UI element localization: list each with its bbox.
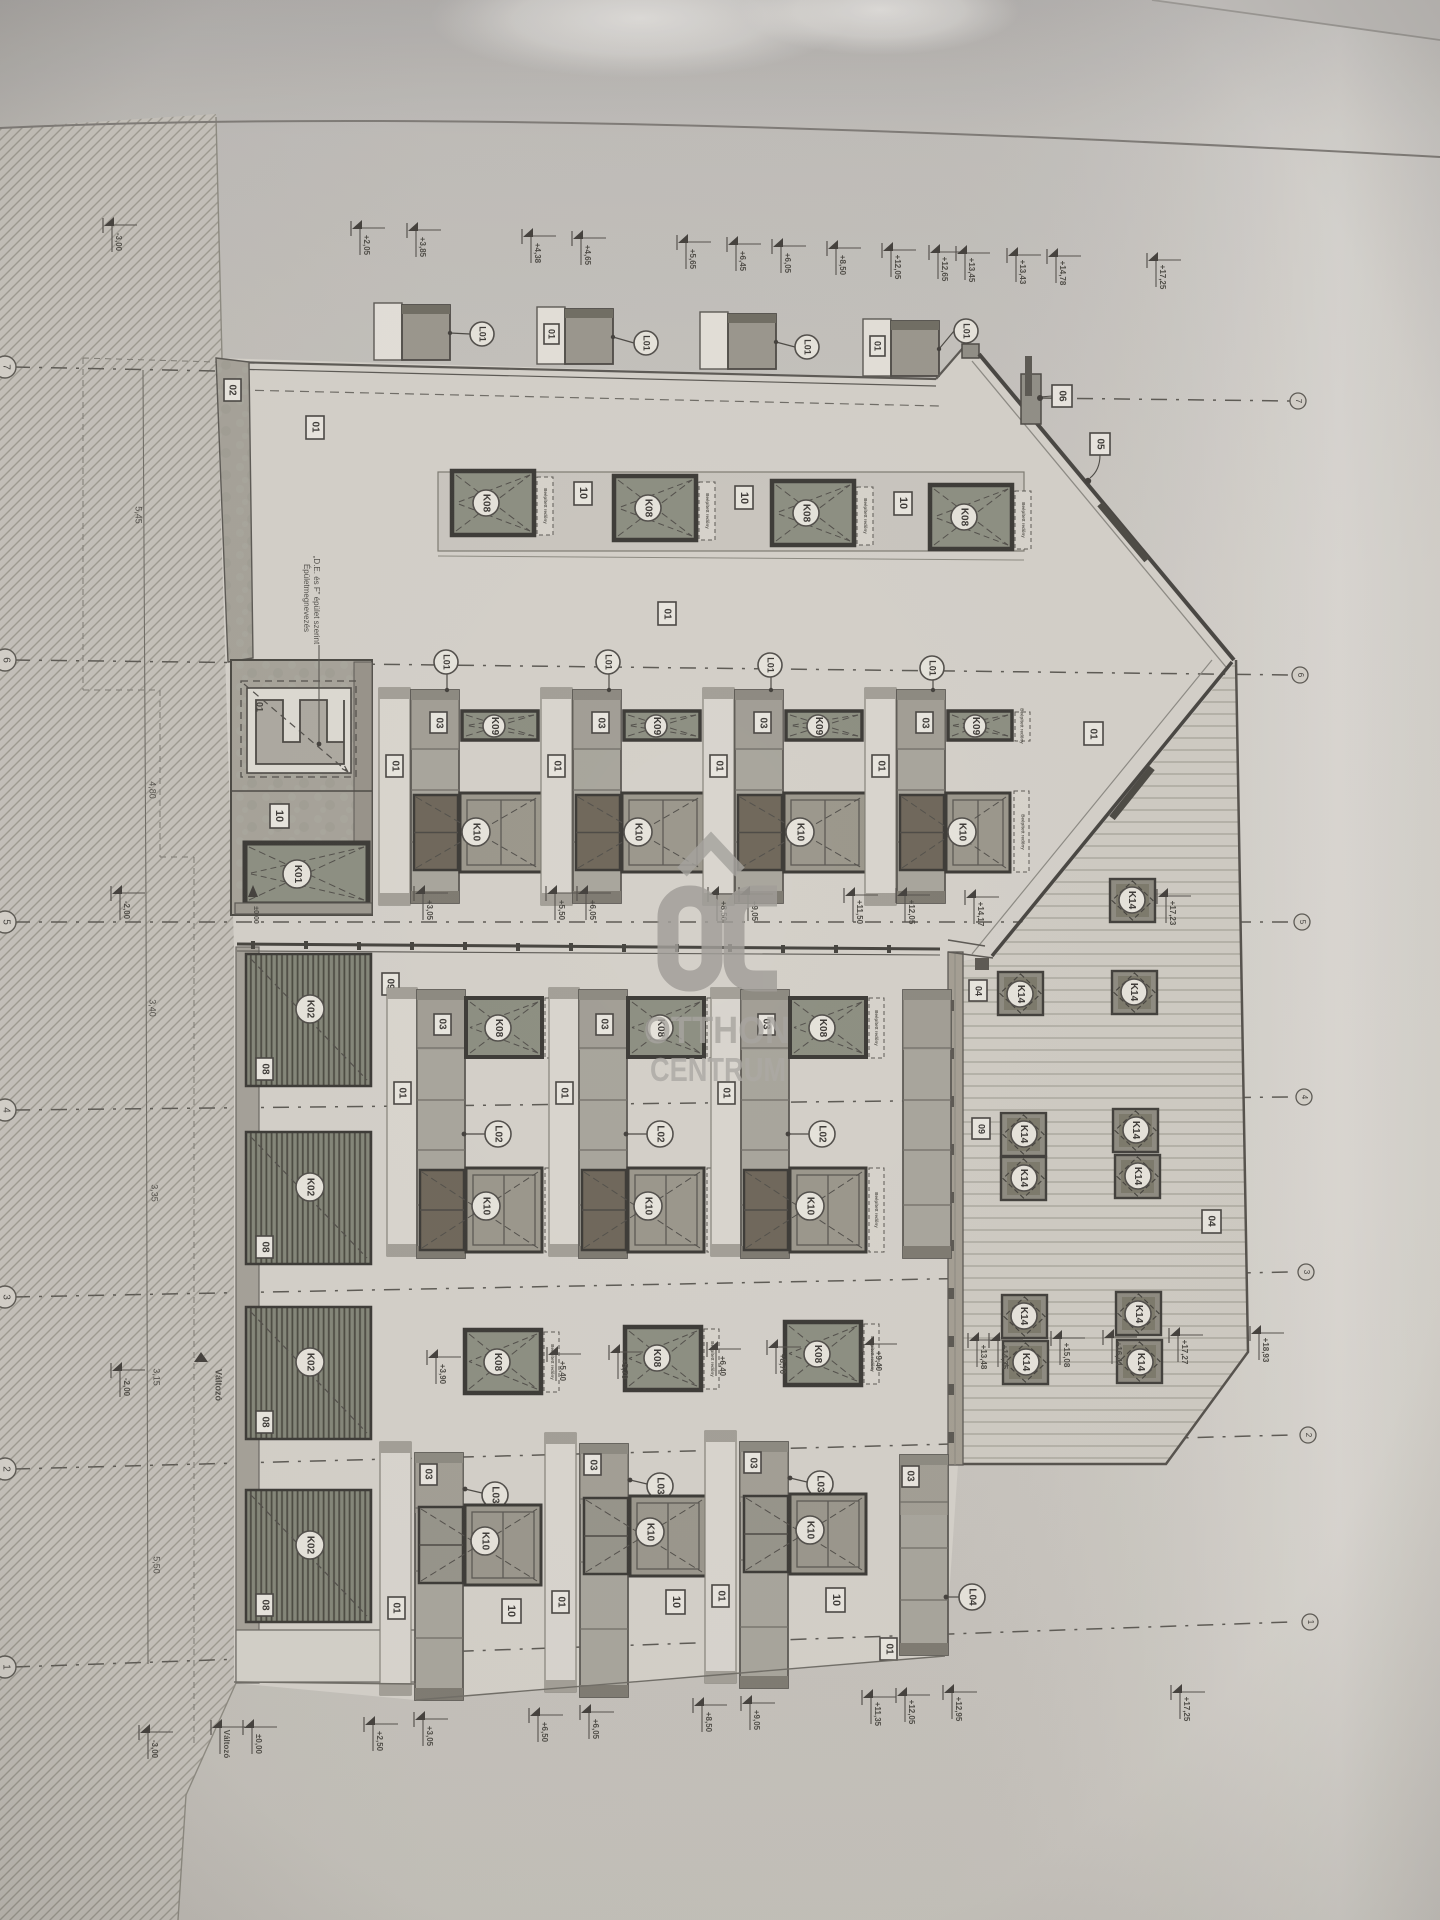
svg-text:CENTRUM: CENTRUM bbox=[650, 1051, 786, 1088]
svg-text:OTTHON: OTTHON bbox=[644, 1010, 790, 1052]
